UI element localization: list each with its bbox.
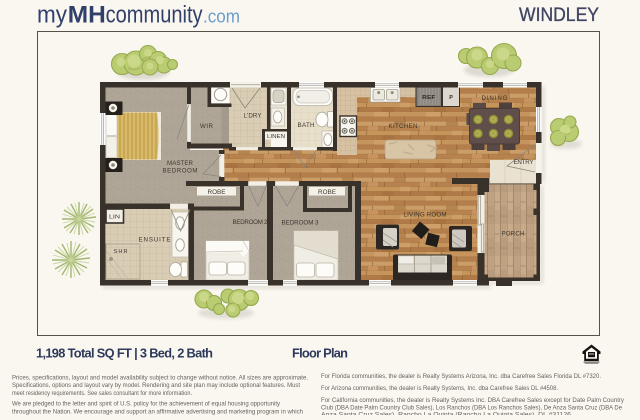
svg-text:PORCH: PORCH xyxy=(502,231,525,238)
svg-text:DINING: DINING xyxy=(482,95,508,102)
svg-text:MH: MH xyxy=(68,1,106,28)
svg-text:BEDROOM 3: BEDROOM 3 xyxy=(282,220,320,227)
svg-text:ROBE: ROBE xyxy=(208,190,226,196)
svg-text:REF: REF xyxy=(422,95,435,101)
svg-text:ENSUITE: ENSUITE xyxy=(139,237,171,244)
svg-text:P: P xyxy=(449,95,453,101)
svg-text:For Florida communities, the d: For Florida communities, the dealer is R… xyxy=(321,374,601,380)
svg-text:Specifications, options and la: Specifications, options and layout vary … xyxy=(12,383,300,389)
svg-text:ENTRY: ENTRY xyxy=(514,159,534,166)
svg-text:For California communities, th: For California communities, the dealer i… xyxy=(321,398,624,404)
svg-text:.com: .com xyxy=(203,6,240,26)
svg-text:Club (DBA Date Palm Country Cl: Club (DBA Date Palm Country Club Sales),… xyxy=(321,405,623,411)
svg-text:LIN: LIN xyxy=(109,215,120,221)
svg-text:throughout the Nation. We enco: throughout the Nation. We encourage and … xyxy=(12,409,303,415)
svg-text:SHR: SHR xyxy=(114,249,128,255)
svg-text:Prices, specifications, layout: Prices, specifications, layout and model… xyxy=(12,376,308,382)
svg-text:For Arizona communities, the d: For Arizona communities, the dealer is R… xyxy=(321,386,558,392)
svg-text:1,198 Total SQ FT | 3 Bed, 2 B: 1,198 Total SQ FT | 3 Bed, 2 Bath xyxy=(36,345,213,360)
svg-text:WINDLEY: WINDLEY xyxy=(519,5,599,26)
svg-text:BATH: BATH xyxy=(298,122,315,129)
svg-text:KITCHEN: KITCHEN xyxy=(389,123,418,130)
svg-text:meet residency requirements. S: meet residency requirements. See sales c… xyxy=(12,391,192,397)
svg-text:my: my xyxy=(37,1,67,28)
svg-text:ROBE: ROBE xyxy=(318,190,336,196)
svg-text:BEDROOM 2: BEDROOM 2 xyxy=(233,219,269,226)
svg-text:LINEN: LINEN xyxy=(267,134,285,140)
svg-text:MASTER: MASTER xyxy=(167,160,194,167)
svg-text:L'DRY: L'DRY xyxy=(244,113,262,120)
svg-text:community: community xyxy=(106,1,203,28)
svg-text:BEDROOM: BEDROOM xyxy=(163,168,198,175)
svg-text:LIVING ROOM: LIVING ROOM xyxy=(404,212,447,219)
svg-text:WIR: WIR xyxy=(200,123,214,130)
svg-text:Floor Plan: Floor Plan xyxy=(292,345,348,360)
svg-text:We are pledged to the letter a: We are pledged to the letter and spirit … xyxy=(12,402,280,408)
